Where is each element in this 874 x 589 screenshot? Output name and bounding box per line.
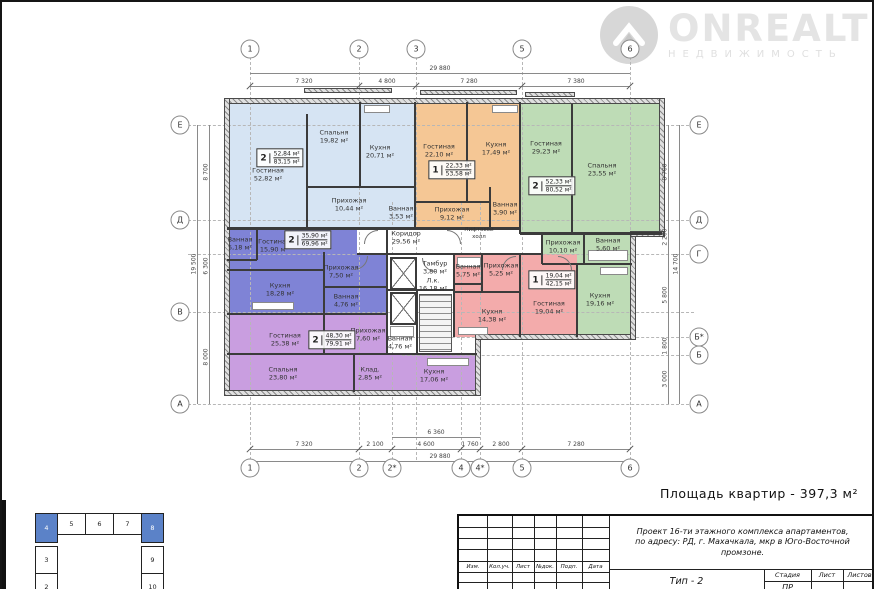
table-line (459, 538, 609, 539)
wall (571, 104, 573, 234)
dimension-value: 2 100 (366, 441, 383, 448)
dimension-value: 5 800 (662, 286, 669, 303)
room-label: Гостиная 25,38 м² (269, 332, 301, 349)
table-line (459, 527, 609, 528)
room-label: Ванная 3,53 м² (389, 205, 414, 222)
axis-marker: 1 (241, 459, 260, 478)
dimension-line (250, 73, 630, 74)
wall (454, 283, 482, 285)
sheets-header: Листов (843, 569, 874, 581)
wall (323, 252, 325, 314)
wall (227, 269, 324, 271)
sheet-edge (2, 500, 6, 589)
room-label: Кухня 14,38 м² (478, 308, 506, 325)
dimension-value: 7 280 (567, 441, 584, 448)
axis-marker: Б* (690, 328, 709, 347)
wall (489, 187, 491, 228)
axis-marker: А (690, 395, 709, 414)
wall (353, 354, 355, 392)
axis-marker: Е (171, 116, 190, 135)
door (364, 230, 378, 244)
room-label: Ванная 4,76 м² (388, 335, 413, 352)
key-plan-cell: 4 (35, 513, 58, 543)
wall (454, 253, 542, 255)
axis-marker: А (171, 395, 190, 414)
wall (475, 335, 481, 396)
room-label: Клад. 2,85 м² (358, 366, 382, 383)
dimension-value: 4 600 (417, 441, 434, 448)
room-label: Прихожая 7,60 м² (351, 327, 386, 344)
kitchen-counter (458, 327, 488, 335)
axis-marker: 5 (513, 40, 532, 59)
dimension-value: 7 380 (567, 78, 584, 85)
room-label: Ванная 5,75 м² (456, 263, 481, 280)
apartment-lightblue (227, 102, 415, 228)
key-plan-cell: 5 (57, 513, 86, 535)
dimension-value: 7 280 (460, 78, 477, 85)
room-label: Спальня 23,55 м² (588, 162, 617, 179)
dimension-value: 8 700 (662, 163, 669, 180)
wall (576, 264, 578, 337)
room-label: Кухня 18,28 м² (266, 282, 294, 299)
room-label: Прихожая 9,12 м² (435, 206, 470, 223)
axis-marker: 2 (350, 40, 369, 59)
col-header-data: Дата (582, 561, 609, 572)
title-block: Изм. Кол.уч. Лист №док. Подп. Дата Проек… (457, 514, 874, 589)
axis-marker: Г (690, 245, 709, 264)
room-label: Гостиная 29,23 м² (530, 140, 562, 157)
col-header-koluch: Кол.уч. (487, 561, 512, 572)
apartment-tag: 1 19,04 м²42,15 м² (528, 270, 575, 289)
room-label: Гостиная 52,82 м² (252, 167, 284, 184)
room-label: Кухня 17,49 м² (482, 141, 510, 158)
axis-marker: В (171, 303, 190, 322)
wall (307, 186, 415, 188)
apartment-tag: 2 52,84 м²83,15 м² (256, 148, 303, 167)
balcony (525, 92, 575, 97)
project-title-line2: по адресу: РД, г. Махачкала, мкр в Юго-В… (615, 537, 870, 558)
stage-header: Стадия (764, 569, 811, 581)
project-title-line1: Проект 16-ти этажного комплекса апартаме… (637, 527, 849, 537)
axis-marker: 6 (621, 40, 640, 59)
elevator (390, 292, 417, 325)
apartment-tag: 1 22,33 м²53,58 м² (428, 160, 475, 179)
balcony (420, 90, 517, 95)
dimension-value: 29 880 (430, 65, 451, 72)
door (447, 230, 461, 244)
room-label: Спальня 19,82 м² (320, 129, 349, 146)
apartment-tag: 2 35,90 м²69,96 м² (284, 230, 331, 249)
axis-marker: 6 (621, 459, 640, 478)
dimension-value: 19 500 (191, 254, 198, 275)
room-label: Кухня 20,71 м² (366, 144, 394, 161)
col-header-podp: Подп. (556, 561, 582, 572)
apartment-number: 2 (312, 335, 322, 345)
room-label: Ванная 4,76 м² (334, 293, 359, 310)
dimension-line (250, 86, 630, 87)
key-plan-cell: 9 (141, 546, 164, 574)
key-plan-cell: 7 (113, 513, 142, 535)
wall (415, 201, 490, 203)
balcony (304, 88, 392, 93)
room-label: Коридор 29,56 м² (391, 230, 421, 247)
wall (541, 234, 543, 264)
floor-plan: Гостиная 52,82 м² Спальня 19,82 м² Кухня… (2, 2, 874, 502)
axis-marker: Д (690, 211, 709, 230)
dimension-value: 4 800 (378, 78, 395, 85)
dimension-value: 7 320 (295, 441, 312, 448)
drawing-sheet: ONREALT НЕДВИЖИМОСТЬ (0, 0, 874, 589)
dimension-value: 14 700 (673, 254, 680, 275)
dimension-line (392, 437, 480, 438)
key-plan-cell: 2 (35, 573, 58, 589)
room-label: Тамбур 3,80 м² (423, 260, 448, 277)
sheet-header: Лист (811, 569, 843, 581)
key-plan-cell: 10 (141, 573, 164, 589)
apartment-tag: 2 52,33 м²80,52 м² (528, 176, 575, 195)
key-plan-cell: 3 (35, 546, 58, 574)
dimension-line (250, 461, 630, 462)
key-plan-cell: 6 (85, 513, 114, 535)
grid-line (402, 355, 694, 356)
col-header-ndok: №док. (534, 561, 556, 572)
dimension-value: 2 200 (662, 228, 669, 245)
dimension-value: 8 000 (203, 348, 210, 365)
kitchen-counter (427, 358, 469, 366)
room-label: Л.к. 16,18 м² (419, 277, 447, 294)
wall (357, 253, 457, 255)
dimension-value: 6 360 (427, 429, 444, 436)
room-label: Гостиная 22,10 м² (423, 143, 455, 160)
axis-marker: 2* (383, 459, 402, 478)
room-label: Прихожая 5,25 м² (484, 262, 519, 279)
wall (475, 334, 636, 340)
room-label: Кухня 19,16 м² (586, 292, 614, 309)
axis-marker: Б (690, 346, 709, 365)
wall (227, 353, 477, 355)
elevator (390, 257, 417, 290)
wall (224, 98, 664, 104)
kitchen-counter (252, 302, 294, 310)
axis-marker: 2 (350, 459, 369, 478)
room-label: Гостиная 19,04 м² (533, 300, 565, 317)
wall (583, 234, 585, 264)
room-label: Лифтовой холл (464, 227, 493, 241)
kitchen-counter (492, 105, 518, 113)
axis-marker: Д (171, 211, 190, 230)
apartment-number: 1 (532, 275, 542, 285)
wall (324, 286, 387, 288)
apartment-number: 2 (260, 153, 270, 163)
wall (359, 102, 361, 188)
wall (519, 254, 521, 337)
wall (630, 231, 636, 340)
dimension-value: 6 300 (203, 257, 210, 274)
apartment-tag: 2 48,30 м²79,91 м² (308, 330, 355, 349)
axis-marker: 5 (513, 459, 532, 478)
room-label: Ванная 5,60 м² (596, 237, 621, 254)
stage-value: ПР (764, 581, 811, 589)
room-label: Прихожая 7,50 м² (324, 264, 359, 281)
dimension-value: 1 800 (662, 337, 669, 354)
grid-line (188, 404, 694, 405)
grid-line (188, 125, 694, 126)
total-area-label: Площадь квартир - 397,3 м² (660, 486, 858, 501)
apartment-number: 2 (532, 181, 542, 191)
room-label: Прихожая 10,10 м² (546, 239, 581, 256)
key-plan-cell: 8 (141, 513, 164, 543)
wall (414, 102, 416, 228)
dimension-value: 1 760 (461, 441, 478, 448)
wall (306, 114, 308, 228)
kitchen-counter (600, 267, 628, 275)
room-label: Спальня 23,80 м² (269, 366, 298, 383)
dimension-value: 3 000 (662, 370, 669, 387)
room-label: Прихожая 10,44 м² (332, 197, 367, 214)
grid-line (522, 57, 523, 460)
axis-marker: 3 (407, 40, 426, 59)
dimension-line (250, 449, 630, 450)
col-header-izm: Изм. (459, 561, 487, 572)
wall (454, 291, 520, 293)
dimension-value: 8 700 (203, 163, 210, 180)
axis-marker: 1 (241, 40, 260, 59)
wall (519, 102, 521, 234)
dimension-value: 2 800 (492, 441, 509, 448)
col-header-list: Лист (512, 561, 534, 572)
apartment-number: 2 (288, 235, 298, 245)
table-line (459, 572, 609, 573)
room-label: Ванная 5,18 м² (228, 236, 253, 253)
kitchen-counter (364, 105, 390, 113)
wall (466, 102, 468, 202)
wall (227, 313, 387, 315)
apartment-number: 1 (432, 165, 442, 175)
dimension-value: 7 320 (295, 78, 312, 85)
axis-marker: Е (690, 116, 709, 135)
key-plan: 4 5 6 7 8 3 2 9 10 (30, 507, 170, 589)
type-label: Тип - 2 (609, 569, 764, 589)
axis-marker: 4* (471, 459, 490, 478)
dimension-value: 29 880 (430, 453, 451, 460)
project-title: Проект 16-ти этажного комплекса апартаме… (609, 516, 874, 569)
staircase (419, 294, 452, 352)
room-label: Ванная 3,90 м² (493, 201, 518, 218)
table-line (459, 582, 609, 583)
wall (227, 259, 257, 261)
room-label: Кухня 17,06 м² (420, 368, 448, 385)
table-line (459, 549, 609, 550)
wall (542, 263, 632, 265)
axis-marker: 4 (452, 459, 471, 478)
